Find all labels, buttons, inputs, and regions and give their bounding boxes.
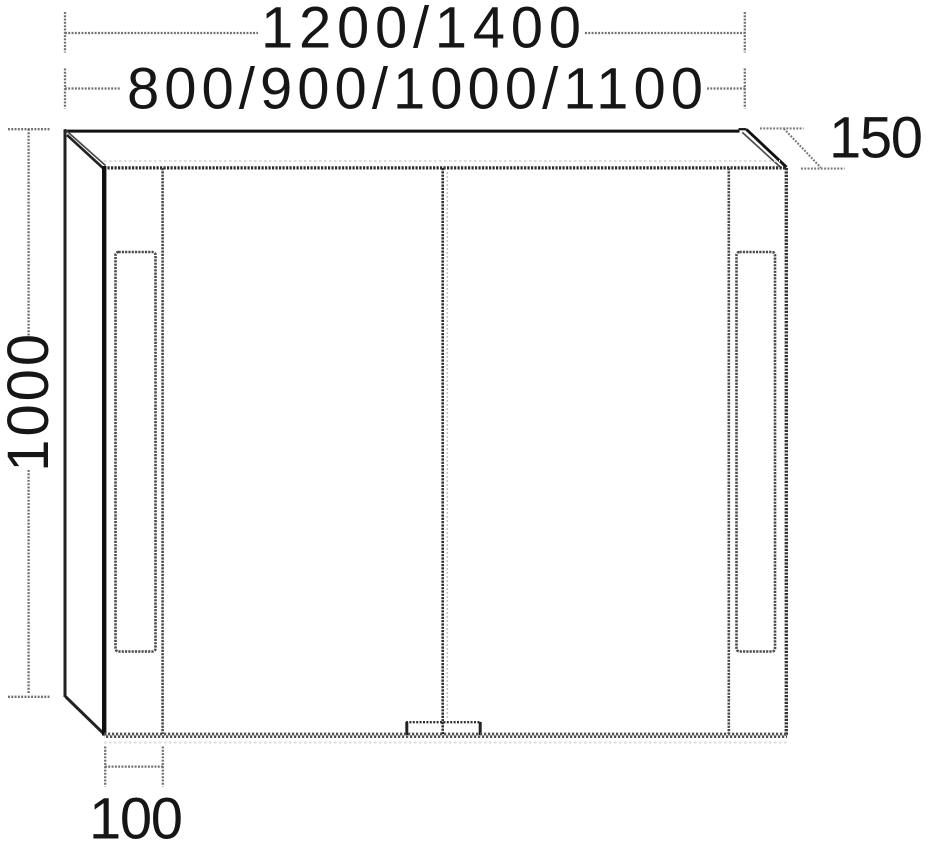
svg-text:100: 100	[89, 787, 183, 852]
svg-text:150: 150	[829, 106, 923, 171]
svg-text:800/900/1000/1100: 800/900/1000/1100	[127, 57, 703, 122]
svg-text:1200/1400: 1200/1400	[261, 0, 581, 61]
